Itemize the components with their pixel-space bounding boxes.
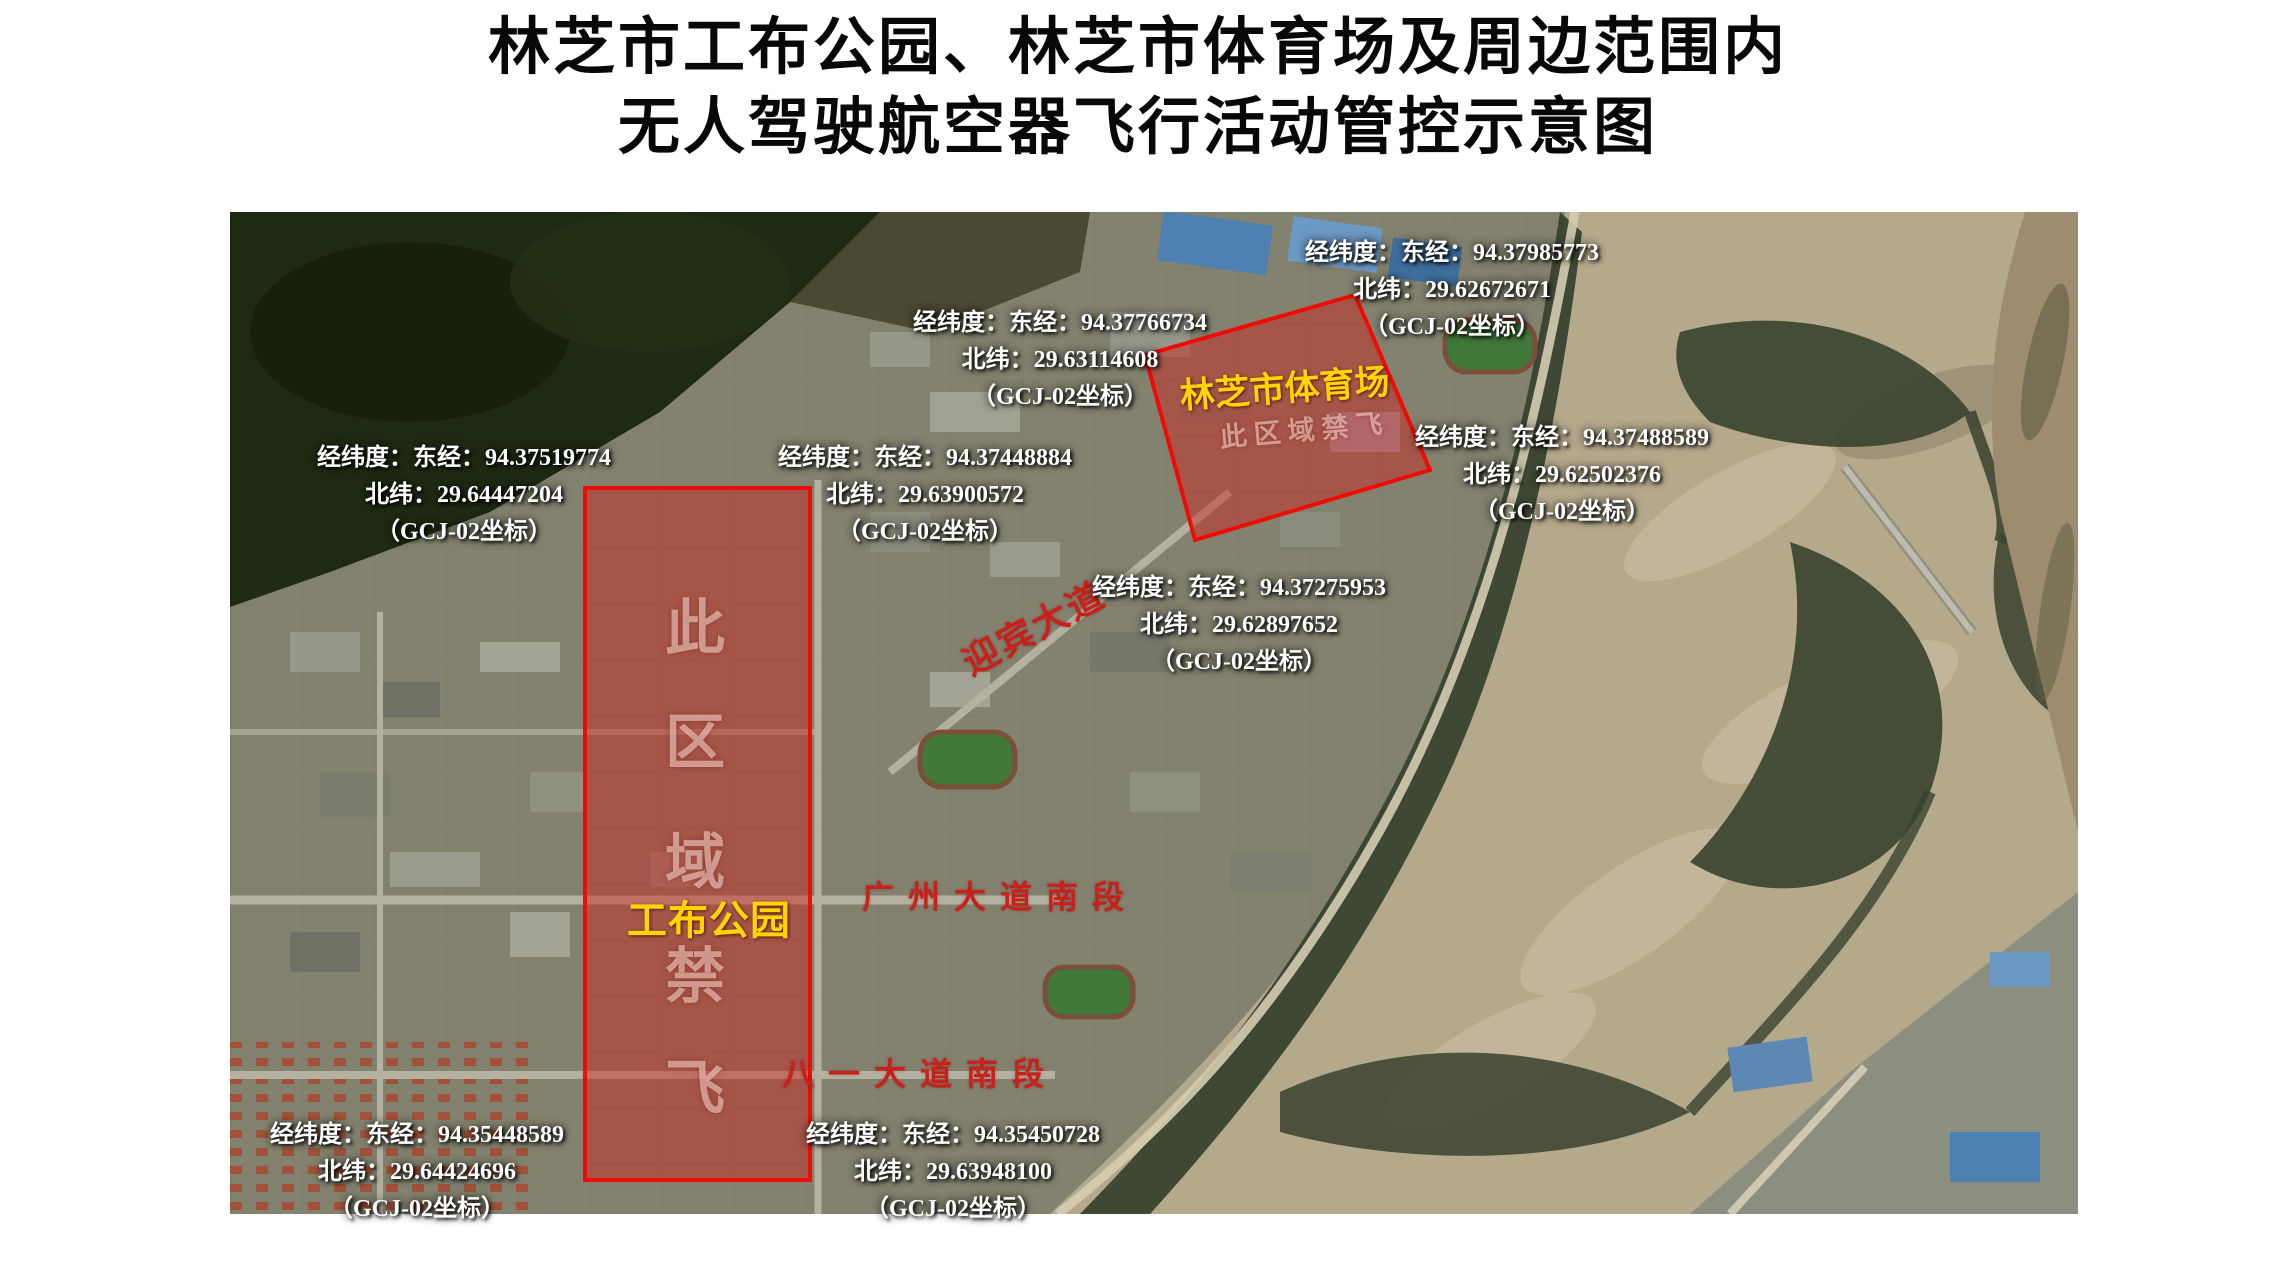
coordinate-latitude: 北纬：29.64447204 [317,477,611,514]
coordinate-label: 经纬度：东经：94.37519774 北纬：29.64447204 （GCJ-0… [317,440,611,551]
coordinate-system: （GCJ-02坐标） [913,379,1207,416]
coordinate-label: 经纬度：东经：94.35448589 北纬：29.64424696 （GCJ-0… [270,1117,564,1228]
coordinate-longitude: 经纬度：东经：94.37519774 [317,440,611,477]
coordinate-latitude: 北纬：29.62672671 [1305,272,1599,309]
coordinate-latitude: 北纬：29.62897652 [1092,607,1386,644]
coordinate-label: 经纬度：东经：94.35450728 北纬：29.63948100 （GCJ-0… [806,1117,1100,1228]
coordinate-system: （GCJ-02坐标） [1092,644,1386,681]
coordinate-system: （GCJ-02坐标） [317,514,611,551]
coordinate-label: 经纬度：东经：94.37985773 北纬：29.62672671 （GCJ-0… [1305,235,1599,346]
coordinate-latitude: 北纬：29.64424696 [270,1154,564,1191]
park-zone-label: 工布公园 [627,888,787,946]
park-nofly-char: 区 [663,694,727,781]
park-nofly-char: 飞 [663,1040,727,1127]
coordinate-latitude: 北纬：29.62502376 [1415,457,1709,494]
park-nofly-char: 此 [663,580,727,667]
page-title: 林芝市工布公园、林芝市体育场及周边范围内 无人驾驶航空器飞行活动管控示意图 [0,8,2276,168]
satellite-map: 此 区 域 禁 飞 工布公园 林芝市体育场 此区域禁飞 迎宾大道 广州大道南段 … [230,212,2078,1214]
coordinate-label: 经纬度：东经：94.37448884 北纬：29.63900572 （GCJ-0… [778,440,1072,551]
street-label-bayi-avenue-south: 八一大道南段 [782,1049,1058,1095]
coordinate-system: （GCJ-02坐标） [1415,494,1709,531]
coordinate-longitude: 经纬度：东经：94.35450728 [806,1117,1100,1154]
coordinate-system: （GCJ-02坐标） [1305,309,1599,346]
coordinate-label: 经纬度：东经：94.37488589 北纬：29.62502376 （GCJ-0… [1415,420,1709,531]
coordinate-latitude: 北纬：29.63900572 [778,477,1072,514]
page-title-line1: 林芝市工布公园、林芝市体育场及周边范围内 [0,8,2276,88]
coordinate-latitude: 北纬：29.63114608 [913,342,1207,379]
coordinate-longitude: 经纬度：东经：94.37985773 [1305,235,1599,272]
drone-control-diagram: 林芝市工布公园、林芝市体育场及周边范围内 无人驾驶航空器飞行活动管控示意图 [0,0,2276,1280]
coordinate-longitude: 经纬度：东经：94.37275953 [1092,570,1386,607]
coordinate-label: 经纬度：东经：94.37275953 北纬：29.62897652 （GCJ-0… [1092,570,1386,681]
coordinate-longitude: 经纬度：东经：94.37488589 [1415,420,1709,457]
coordinate-latitude: 北纬：29.63948100 [806,1154,1100,1191]
coordinate-longitude: 经纬度：东经：94.37766734 [913,305,1207,342]
coordinate-longitude: 经纬度：东经：94.35448589 [270,1117,564,1154]
coordinate-system: （GCJ-02坐标） [778,514,1072,551]
coordinate-system: （GCJ-02坐标） [806,1191,1100,1228]
coordinate-label: 经纬度：东经：94.37766734 北纬：29.63114608 （GCJ-0… [913,305,1207,416]
coordinate-system: （GCJ-02坐标） [270,1191,564,1228]
coordinate-longitude: 经纬度：东经：94.37448884 [778,440,1072,477]
street-label-guangzhou-avenue-south: 广州大道南段 [862,872,1138,918]
page-title-line2: 无人驾驶航空器飞行活动管控示意图 [0,88,2276,168]
